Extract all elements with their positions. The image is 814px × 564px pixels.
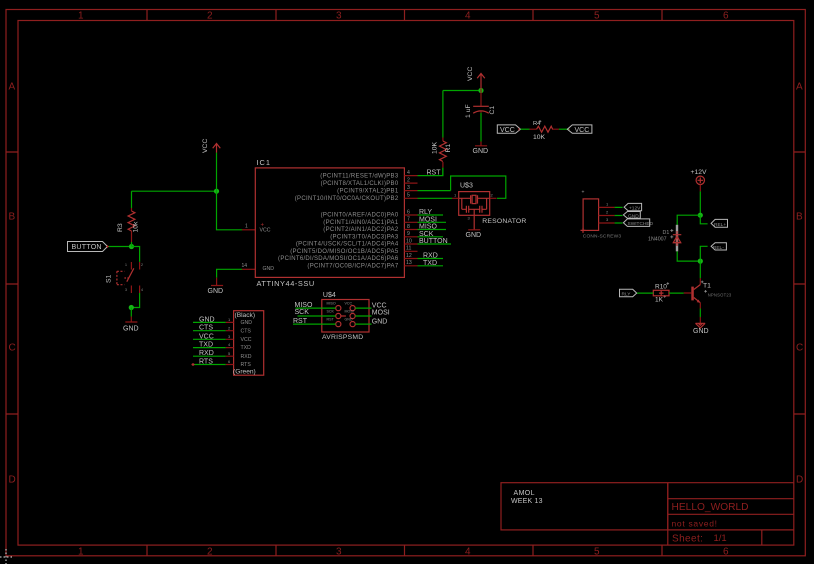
svg-text:GND: GND	[466, 232, 482, 239]
svg-text:GND: GND	[263, 266, 275, 272]
svg-text:IC1: IC1	[257, 158, 272, 167]
svg-text:MISO: MISO	[295, 302, 313, 309]
svg-text:1: 1	[78, 547, 84, 558]
svg-text:10: 10	[406, 238, 412, 244]
svg-text:VCC: VCC	[260, 228, 271, 234]
svg-text:RESONATOR: RESONATOR	[482, 218, 526, 225]
svg-text:MOSI: MOSI	[372, 310, 390, 317]
svg-text:RST: RST	[427, 170, 442, 177]
svg-text:VCC: VCC	[467, 67, 474, 81]
svg-text:VCC: VCC	[500, 127, 515, 134]
svg-text:VCC: VCC	[345, 302, 353, 306]
svg-text:MISO: MISO	[327, 302, 336, 306]
svg-text:C1: C1	[489, 106, 496, 115]
svg-text:C: C	[9, 343, 16, 354]
svg-text:U$3: U$3	[460, 183, 473, 190]
svg-text:6: 6	[723, 11, 729, 22]
svg-text:1N4007: 1N4007	[648, 237, 667, 243]
svg-text:NPNSOT23: NPNSOT23	[708, 293, 732, 298]
svg-text:8: 8	[407, 224, 410, 230]
svg-text:A: A	[796, 82, 803, 93]
svg-text:VCC: VCC	[199, 333, 214, 340]
svg-text:WEEK 13: WEEK 13	[511, 498, 543, 505]
svg-text:VCC: VCC	[241, 337, 252, 343]
svg-text:12: 12	[406, 253, 412, 259]
svg-text:AMOL: AMOL	[514, 490, 535, 497]
svg-text:MOSI: MOSI	[345, 310, 354, 314]
svg-text:9: 9	[407, 231, 410, 237]
svg-text:(PCINT9/XTAL2)PB1: (PCINT9/XTAL2)PB1	[337, 188, 399, 194]
svg-text:(PCINT4/USCK/SCL/T1/ADC4)PA4: (PCINT4/USCK/SCL/T1/ADC4)PA4	[296, 242, 399, 248]
svg-text:Sheet:: Sheet:	[672, 534, 703, 545]
svg-text:SCK: SCK	[327, 310, 335, 314]
svg-text:13: 13	[406, 260, 412, 266]
svg-text:not saved!: not saved!	[672, 519, 718, 529]
svg-text:GND: GND	[693, 328, 709, 335]
svg-text:TXD: TXD	[199, 342, 213, 349]
svg-text:+12V: +12V	[629, 206, 641, 212]
svg-text:4: 4	[141, 288, 143, 292]
svg-text:VCC: VCC	[202, 139, 209, 153]
svg-text:GND: GND	[345, 318, 353, 322]
svg-text:REL+: REL+	[714, 222, 726, 228]
svg-text:REL-: REL-	[713, 245, 724, 251]
svg-text:10K: 10K	[533, 134, 546, 141]
svg-text:CONN-SCREW3: CONN-SCREW3	[583, 233, 622, 239]
svg-text:SCK: SCK	[295, 309, 310, 316]
svg-text:MISO: MISO	[419, 224, 437, 231]
svg-text:U$4: U$4	[323, 292, 336, 299]
svg-text:VCC: VCC	[575, 127, 590, 134]
svg-text:4: 4	[465, 547, 471, 558]
svg-text:(PCINT11/RESET/dW)PB3: (PCINT11/RESET/dW)PB3	[320, 173, 399, 179]
svg-text:1: 1	[245, 224, 248, 230]
svg-text:BUTTON: BUTTON	[419, 238, 448, 245]
svg-text:(PCINT1/AIN0/ADC1)PA1: (PCINT1/AIN0/ADC1)PA1	[323, 220, 399, 226]
svg-text:RXD: RXD	[423, 253, 438, 260]
svg-text:SCK: SCK	[419, 231, 434, 238]
svg-text:(PCINT10/INT0/OC0A/CKOUT)PB2: (PCINT10/INT0/OC0A/CKOUT)PB2	[295, 196, 399, 202]
svg-text:5: 5	[594, 11, 600, 22]
svg-text:A: A	[9, 82, 16, 93]
svg-text:B: B	[796, 212, 803, 223]
svg-text:CTS: CTS	[241, 328, 252, 334]
svg-text:D: D	[796, 475, 803, 486]
svg-text:ATTINY44-SSU: ATTINY44-SSU	[257, 279, 315, 288]
svg-text:11: 11	[406, 246, 411, 252]
svg-text:6: 6	[407, 209, 410, 215]
svg-text:GND: GND	[473, 148, 489, 155]
svg-text:MOSI: MOSI	[419, 216, 437, 223]
svg-text:6: 6	[723, 547, 729, 558]
svg-text:2: 2	[407, 178, 410, 184]
svg-text:R1: R1	[445, 144, 452, 153]
svg-text:D1: D1	[663, 230, 670, 236]
svg-text:3: 3	[336, 11, 342, 22]
svg-text:AVRISPSMD: AVRISPSMD	[322, 334, 363, 341]
svg-text:4: 4	[407, 170, 410, 176]
svg-text:(PCINT5/DO/MISO/OC1B/ADC5)PA5: (PCINT5/DO/MISO/OC1B/ADC5)PA5	[290, 249, 399, 255]
svg-text:GND: GND	[372, 319, 388, 326]
svg-text:C: C	[796, 343, 803, 354]
svg-text:1: 1	[78, 11, 84, 22]
svg-text:(PCINT6/DI/SDA/MOSI/OC1A/ADC6): (PCINT6/DI/SDA/MOSI/OC1A/ADC6)PA6	[278, 256, 399, 262]
svg-text:10k: 10k	[133, 221, 140, 233]
svg-text:(PCINT0/AREF/ADC0)PA0: (PCINT0/AREF/ADC0)PA0	[321, 213, 399, 219]
svg-text:B: B	[9, 212, 16, 223]
svg-text:RTS: RTS	[241, 362, 252, 368]
svg-text:TXD: TXD	[423, 260, 437, 267]
svg-text:RLY: RLY	[419, 209, 432, 216]
svg-text:CTS: CTS	[199, 325, 213, 332]
svg-text:(Green): (Green)	[233, 369, 256, 376]
svg-text:(PCINT8/XTAL1/CLKI)PB0: (PCINT8/XTAL1/CLKI)PB0	[321, 181, 399, 187]
svg-text:10K: 10K	[432, 141, 439, 154]
svg-text:GND: GND	[241, 320, 253, 326]
svg-text:2: 2	[141, 263, 143, 267]
svg-text:5: 5	[407, 193, 410, 199]
svg-text:5: 5	[594, 547, 600, 558]
svg-text:RXD: RXD	[199, 350, 214, 357]
svg-text:GND: GND	[123, 326, 139, 333]
svg-text:4: 4	[465, 11, 471, 22]
svg-text:HELLO_WORLD: HELLO_WORLD	[672, 502, 749, 513]
svg-text:1: 1	[125, 263, 127, 267]
svg-text:TXD: TXD	[241, 345, 252, 351]
svg-text:7: 7	[407, 217, 410, 223]
svg-text:R3: R3	[117, 223, 124, 232]
svg-text:S1: S1	[106, 274, 113, 283]
svg-text:2: 2	[207, 11, 213, 22]
svg-text:2: 2	[207, 547, 213, 558]
svg-text:+: +	[582, 190, 585, 196]
svg-text:(Black): (Black)	[235, 312, 256, 319]
svg-text:3: 3	[125, 288, 127, 292]
svg-text:BUTTON: BUTTON	[72, 243, 102, 251]
svg-text:1/1: 1/1	[714, 533, 727, 544]
svg-text:14: 14	[242, 263, 248, 269]
svg-text:D: D	[9, 475, 16, 486]
svg-text:3: 3	[407, 185, 410, 191]
svg-text:+12V: +12V	[691, 169, 708, 176]
svg-text:1K: 1K	[655, 296, 664, 303]
svg-text:RTS: RTS	[199, 359, 213, 366]
svg-text:3: 3	[336, 547, 342, 558]
svg-text:GND: GND	[199, 316, 215, 323]
svg-text:RXD: RXD	[241, 354, 252, 360]
svg-text:1 uF: 1 uF	[465, 104, 472, 118]
svg-text:RST: RST	[327, 318, 335, 322]
svg-text:RST: RST	[293, 318, 308, 325]
svg-text:R10: R10	[655, 283, 667, 290]
svg-text:T1: T1	[703, 283, 711, 290]
svg-text:(PCINT7/OC0B/ICP/ADC7)PA7: (PCINT7/OC0B/ICP/ADC7)PA7	[307, 264, 398, 270]
svg-text:GND: GND	[208, 288, 224, 295]
svg-text:SWITCHED: SWITCHED	[628, 221, 654, 227]
svg-text:RLY: RLY	[622, 292, 632, 298]
svg-text:(PCINT3/T0/ADC3)PA3: (PCINT3/T0/ADC3)PA3	[330, 235, 399, 241]
svg-text:(PCINT2/AIN1/ADC2)PA2: (PCINT2/AIN1/ADC2)PA2	[323, 227, 399, 233]
